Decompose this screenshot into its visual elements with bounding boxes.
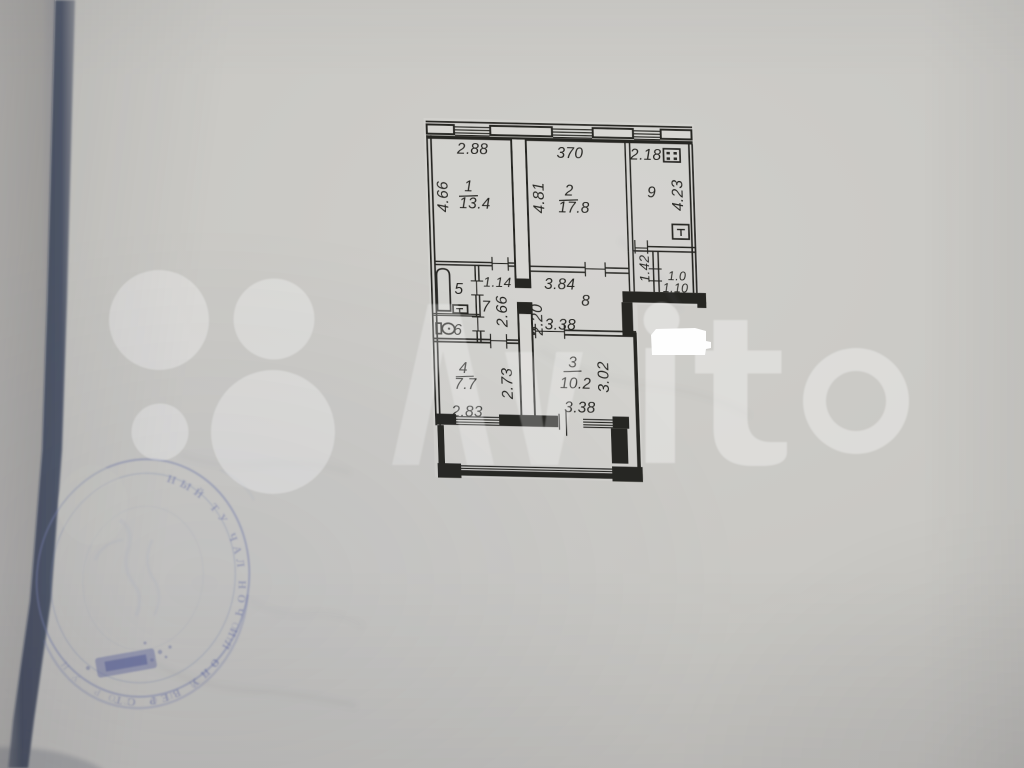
svg-text:7: 7: [481, 299, 492, 316]
svg-text:2.88: 2.88: [456, 140, 489, 158]
svg-text:3.38: 3.38: [544, 316, 576, 334]
svg-text:9: 9: [647, 184, 657, 201]
svg-text:1.14: 1.14: [483, 274, 512, 291]
svg-text:8: 8: [581, 293, 591, 310]
svg-text:370: 370: [556, 145, 583, 163]
svg-text:2: 2: [563, 182, 574, 199]
svg-text:2.66: 2.66: [494, 295, 512, 328]
svg-text:2.18: 2.18: [629, 147, 662, 165]
svg-text:13.4: 13.4: [459, 195, 491, 213]
svg-text:4.81: 4.81: [530, 182, 548, 214]
svg-text:4.66: 4.66: [435, 181, 453, 213]
svg-text:4.23: 4.23: [669, 179, 687, 211]
svg-text:17.8: 17.8: [558, 199, 590, 217]
svg-text:3.84: 3.84: [544, 276, 576, 294]
svg-text:5: 5: [454, 281, 464, 298]
svg-text:1: 1: [464, 178, 473, 195]
